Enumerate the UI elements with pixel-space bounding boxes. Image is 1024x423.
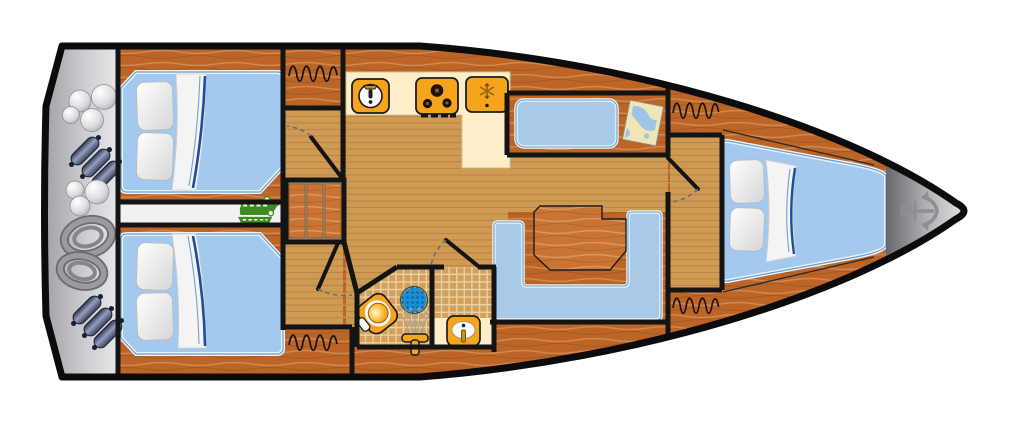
sink-icon (352, 79, 389, 113)
salon-settee-block (507, 93, 668, 155)
companionway-stairs (286, 180, 344, 242)
settee-bench (516, 100, 617, 147)
forward-entry-floor (670, 137, 722, 288)
aft-cabin-port (120, 48, 283, 200)
sea-chart (622, 100, 663, 146)
shower-drain-dots (401, 287, 428, 314)
blanket-forward (766, 160, 796, 262)
stove-icon (416, 78, 458, 118)
salon-dinette (494, 206, 661, 320)
floorplan-stage (0, 0, 1024, 423)
fridge-snowflake-icon (466, 77, 508, 112)
washbasin-icon (447, 316, 480, 346)
aft-cabin-starboard (120, 227, 283, 375)
boat-floorplan-svg (0, 0, 1024, 423)
